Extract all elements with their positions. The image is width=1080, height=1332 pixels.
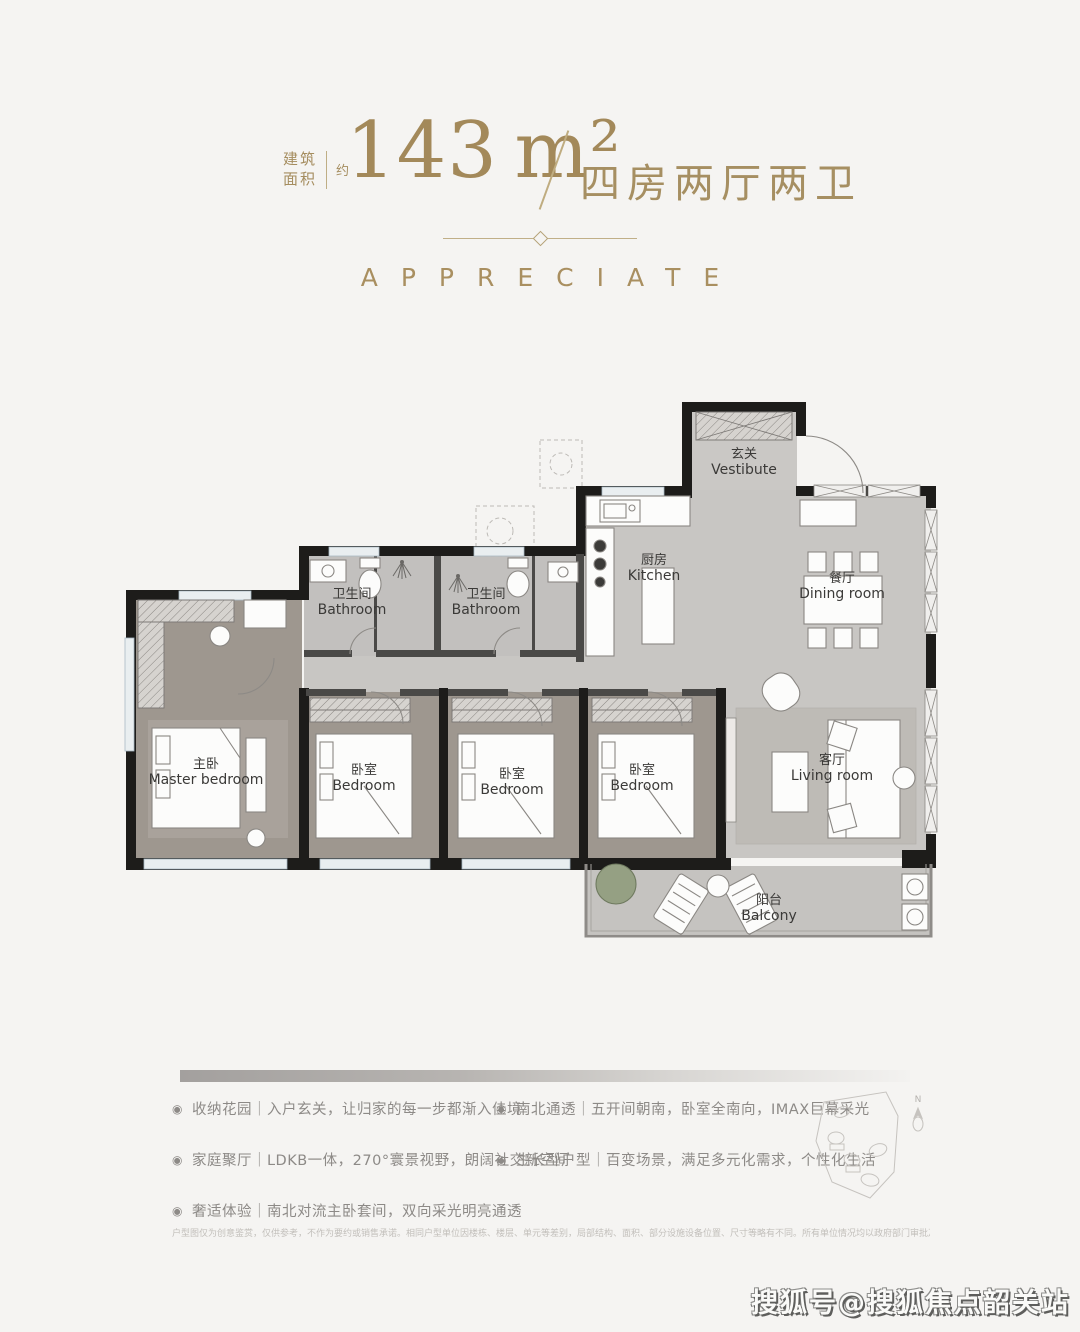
label-dining-en: Dining room xyxy=(799,586,885,602)
ac-platform-outline xyxy=(476,440,582,556)
label-dining-zh: 餐厅 xyxy=(829,570,855,586)
label-master-en: Master bedroom xyxy=(149,772,264,788)
label-living-zh: 客厅 xyxy=(819,752,845,768)
label-bedroom3-zh: 卧室 xyxy=(629,762,655,778)
layout-text: 四房两厅两卫 xyxy=(580,151,862,209)
label-bathroom1-en: Bathroom xyxy=(318,602,387,618)
label-bedroom1-en: Bedroom xyxy=(332,778,395,794)
bullet-icon: ◉ xyxy=(496,1103,507,1115)
bullet-icon: ◉ xyxy=(172,1205,183,1217)
north-compass-label: N xyxy=(915,1095,922,1105)
label-master-zh: 主卧 xyxy=(193,757,219,772)
feature-text: 奢适体验｜南北对流主卧套间，双向采光明亮通透 xyxy=(192,1200,522,1221)
page: 建筑 面积 约 143 m² 四房两厅两卫 APPRECIATE xyxy=(0,0,1080,1332)
label-bathroom2-zh: 卫生间 xyxy=(466,587,505,602)
label-bedroom2-zh: 卧室 xyxy=(499,766,525,782)
label-bathroom2-en: Bathroom xyxy=(452,602,521,618)
label-bedroom2-en: Bedroom xyxy=(480,782,543,798)
bullet-icon: ◉ xyxy=(496,1154,507,1166)
label-balcony-zh: 阳台 xyxy=(756,893,782,908)
section-title: APPRECIATE xyxy=(0,263,1080,292)
feature-item: ◉ 奢适体验｜南北对流主卧套间，双向采光明亮通透 xyxy=(172,1200,570,1221)
site-plan-sketch: N xyxy=(796,1086,941,1226)
label-bathroom1-zh: 卫生间 xyxy=(332,587,371,602)
area-label: 建筑 面积 约 xyxy=(283,150,349,189)
label-bedroom1-zh: 卧室 xyxy=(351,762,377,778)
label-kitchen-zh: 厨房 xyxy=(641,552,667,568)
floor-plan: 玄关 Vestibute 厨房 Kitchen 餐厅 Dining room 卫… xyxy=(124,386,964,978)
diamond-icon xyxy=(533,231,549,247)
area-label-text: 建筑 面积 xyxy=(283,150,317,189)
bullet-icon: ◉ xyxy=(172,1103,183,1115)
label-vestibule-zh: 玄关 xyxy=(731,447,757,462)
gradient-divider xyxy=(180,1070,910,1082)
label-balcony-en: Balcony xyxy=(741,908,797,924)
label-living-en: Living room xyxy=(791,768,873,784)
area-label-divider xyxy=(326,151,327,189)
floor-fills xyxy=(136,406,931,934)
bullet-icon: ◉ xyxy=(172,1154,183,1166)
label-bedroom3-en: Bedroom xyxy=(610,778,673,794)
watermark-text: 搜狐号@搜狐焦点韶关站 xyxy=(751,1281,1070,1320)
label-kitchen-en: Kitchen xyxy=(628,568,681,584)
disclaimer-text: 户型图仅为创意鉴赏，仅供参考，不作为要约或销售承诺。相同户型单位因楼栋、楼层、单… xyxy=(172,1226,930,1239)
area-label-line2: 面积 xyxy=(283,170,317,190)
feature-text: 收纳花园｜入户玄关，让归家的每一步都渐入佳境 xyxy=(192,1098,522,1119)
label-vestibule-en: Vestibute xyxy=(711,462,777,478)
area-label-line1: 建筑 xyxy=(283,150,317,170)
